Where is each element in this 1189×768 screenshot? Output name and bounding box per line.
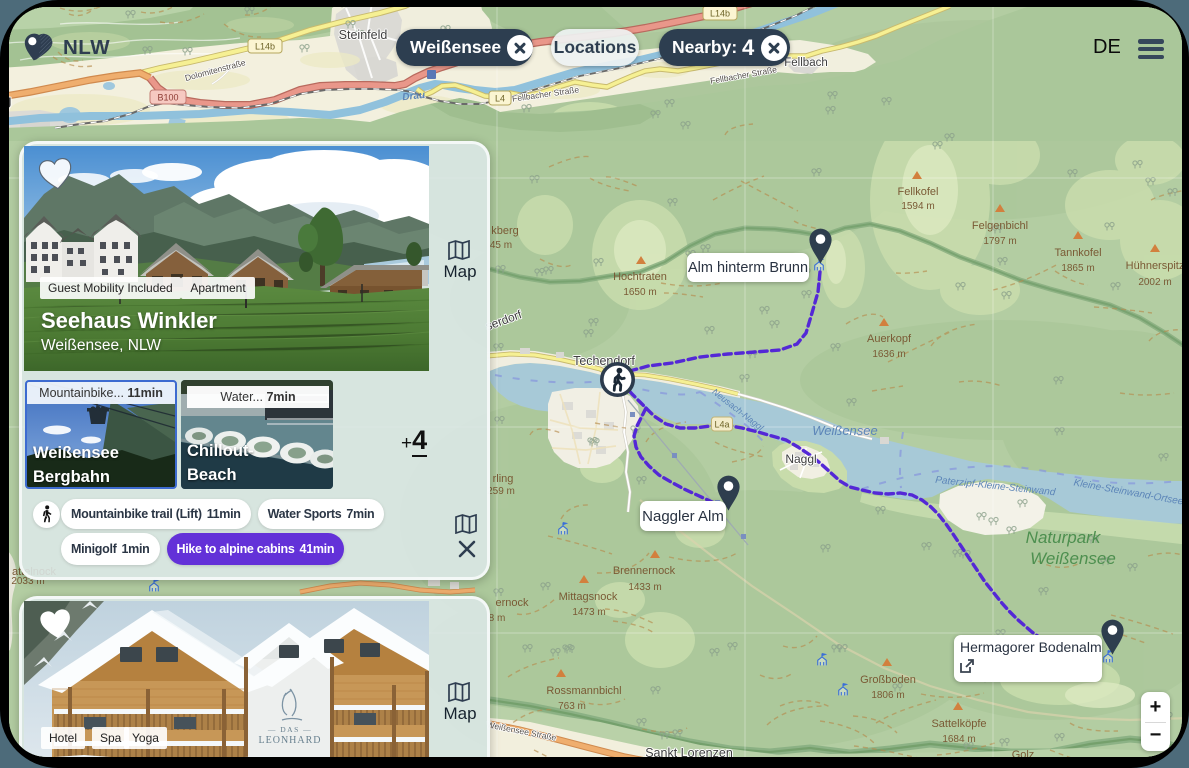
svg-text:Fellkofel: Fellkofel xyxy=(898,186,939,198)
svg-text:8 m: 8 m xyxy=(489,613,506,624)
svg-text:L14b: L14b xyxy=(255,42,275,52)
svg-text:Hochtraten: Hochtraten xyxy=(613,271,667,283)
svg-text:ernock: ernock xyxy=(495,597,529,609)
svg-text:1636 m: 1636 m xyxy=(872,349,905,360)
svg-text:1473 m: 1473 m xyxy=(572,607,605,618)
svg-text:Weißensee: Weißensee xyxy=(1030,549,1116,568)
svg-text:1684 m: 1684 m xyxy=(942,734,975,745)
svg-text:L14b: L14b xyxy=(710,9,730,19)
svg-text:1797 m: 1797 m xyxy=(983,236,1016,247)
svg-text:Weißensee: Weißensee xyxy=(812,423,878,438)
svg-text:kberg: kberg xyxy=(491,225,519,237)
svg-text:— DAS —: — DAS — xyxy=(267,725,312,734)
svg-text:Golz: Golz xyxy=(1012,749,1035,757)
svg-text:Felgenbichl: Felgenbichl xyxy=(972,220,1028,232)
svg-text:1865 m: 1865 m xyxy=(1061,263,1094,274)
svg-text:Brennernock: Brennernock xyxy=(613,565,676,577)
svg-text:1806 m: 1806 m xyxy=(871,690,904,701)
svg-text:1650 m: 1650 m xyxy=(623,287,656,298)
svg-text:1433 m: 1433 m xyxy=(628,582,661,593)
svg-text:2002 m: 2002 m xyxy=(1138,277,1171,288)
svg-text:Tannkofel: Tannkofel xyxy=(1054,247,1101,259)
svg-text:Auerkopf: Auerkopf xyxy=(867,333,912,345)
svg-text:Mittagsnock: Mittagsnock xyxy=(559,591,618,603)
svg-text:Naturpark: Naturpark xyxy=(1026,528,1102,547)
svg-text:Hühnerspitz: Hühnerspitz xyxy=(1126,260,1182,272)
svg-text:45 m: 45 m xyxy=(490,240,512,251)
svg-text:Großboden: Großboden xyxy=(860,674,916,686)
svg-text:B100: B100 xyxy=(157,93,178,103)
svg-text:L4: L4 xyxy=(495,94,505,104)
svg-text:LEONHARD: LEONHARD xyxy=(259,735,322,746)
svg-text:763 m: 763 m xyxy=(558,701,586,712)
svg-text:Rossmannbichl: Rossmannbichl xyxy=(546,685,621,697)
svg-text:L4a: L4a xyxy=(714,420,729,430)
svg-text:Sattelköpfe: Sattelköpfe xyxy=(931,718,986,730)
svg-text:Steinfeld: Steinfeld xyxy=(339,28,388,42)
svg-text:Sankt Lorenzen: Sankt Lorenzen xyxy=(645,746,733,757)
svg-text:1594 m: 1594 m xyxy=(901,201,934,212)
svg-text:g: g xyxy=(9,92,12,108)
svg-text:Fellbach: Fellbach xyxy=(784,57,827,69)
svg-text:rling: rling xyxy=(493,473,514,485)
svg-text:259 m: 259 m xyxy=(487,486,515,497)
svg-text:Naggl: Naggl xyxy=(785,452,816,466)
